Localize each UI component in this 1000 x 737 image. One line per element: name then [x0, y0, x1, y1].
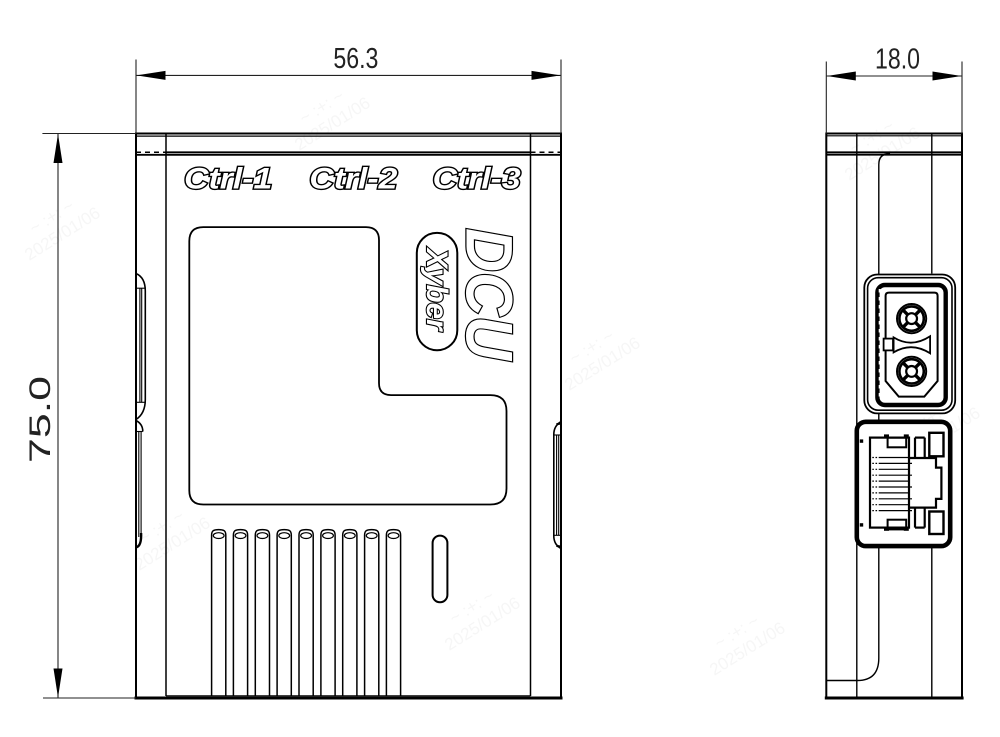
- svg-text:Ctrl-2: Ctrl-2: [309, 163, 397, 196]
- svg-text:DCU: DCU: [453, 228, 527, 362]
- svg-text:Xyber: Xyber: [420, 247, 453, 333]
- svg-text:18.0: 18.0: [875, 44, 920, 76]
- svg-text:75.0: 75.0: [24, 376, 57, 463]
- svg-text:Ctrl-1: Ctrl-1: [184, 163, 272, 196]
- svg-text:56.3: 56.3: [333, 43, 378, 75]
- svg-text:Ctrl-3: Ctrl-3: [433, 163, 521, 196]
